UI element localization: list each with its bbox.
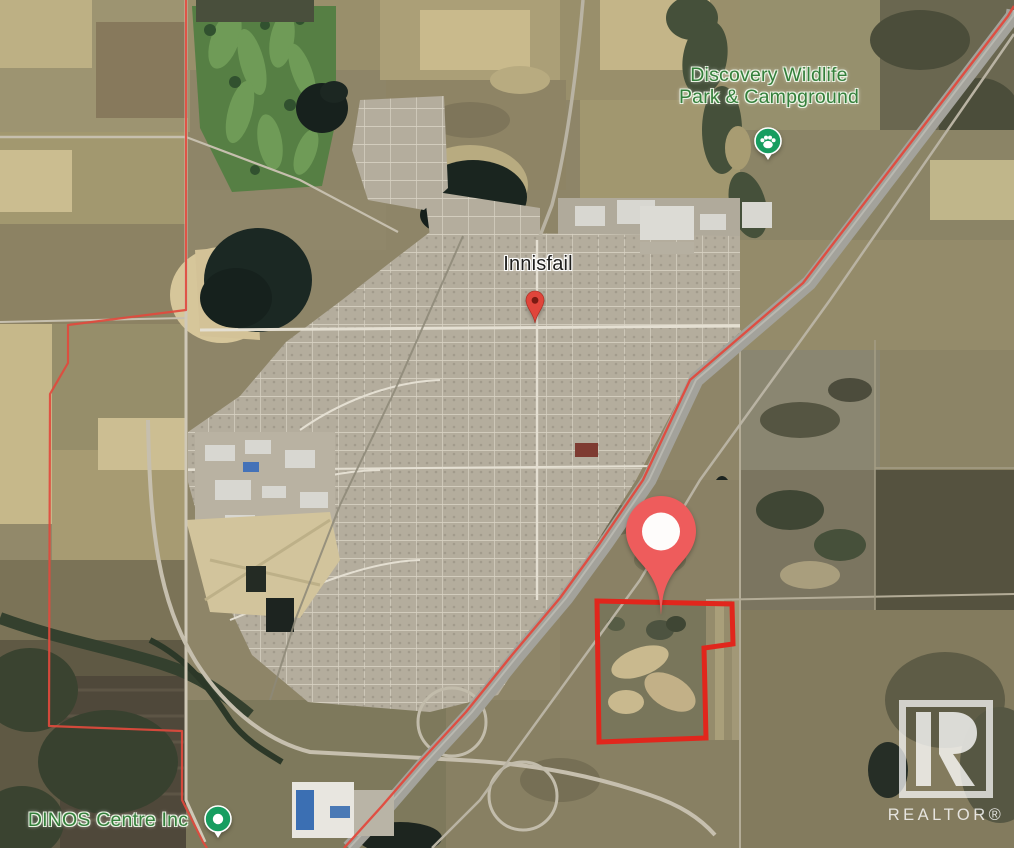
realtor-wordmark: REALTOR® (879, 806, 1013, 825)
property-marker[interactable] (624, 494, 698, 618)
dinos-pin[interactable] (203, 805, 233, 839)
realtor-logo (899, 700, 993, 798)
realtor-watermark: REALTOR® (879, 700, 1013, 825)
map-pin-icon (525, 290, 545, 325)
property-pin-icon (624, 494, 698, 618)
paw-icon (753, 127, 783, 161)
listing-map: Discovery Wildlife Park & Campground Inn… (0, 0, 1014, 848)
map-overlay: Discovery Wildlife Park & Campground Inn… (0, 0, 1014, 848)
poi-label-wildlife-line2: Park & Campground (679, 86, 859, 108)
town-pin[interactable] (525, 290, 545, 325)
realtor-r-icon (916, 712, 977, 786)
town-label: Innisfail (503, 253, 573, 275)
poi-label-wildlife-park: Discovery Wildlife Park & Campground (679, 64, 859, 108)
wildlife-park-pin[interactable] (753, 127, 783, 161)
poi-label-wildlife-line1: Discovery Wildlife (679, 64, 859, 86)
poi-label-dinos: DINOS Centre Inc (28, 809, 188, 831)
dot-pin-icon (203, 805, 233, 839)
